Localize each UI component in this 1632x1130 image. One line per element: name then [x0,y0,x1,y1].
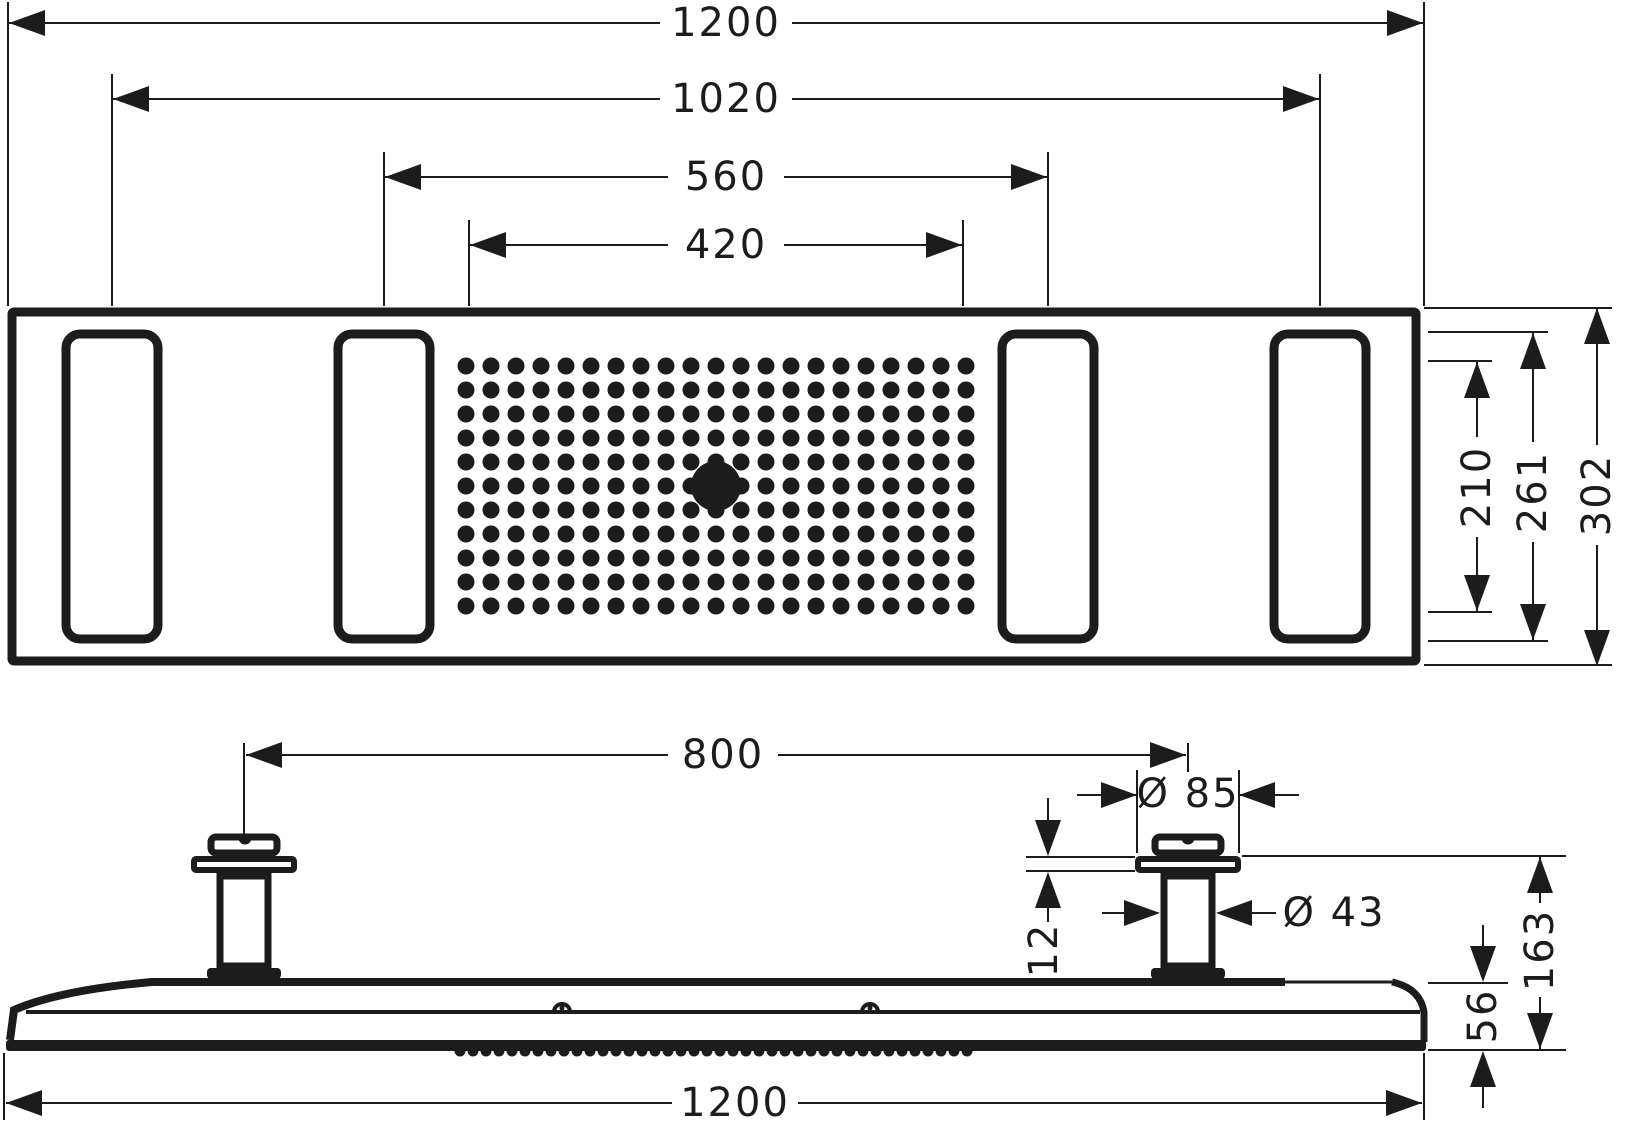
spray-nozzle-dot [708,598,725,615]
spray-nozzle-dot [508,502,525,519]
spray-nozzle-dot [833,550,850,567]
spray-nozzle-dot [683,598,700,615]
arrow-down-icon [1464,575,1490,611]
nozzle-tooth [637,1051,648,1057]
nozzle-tooth [923,1051,934,1057]
spray-nozzle-dot [583,526,600,543]
spray-nozzle-dot [583,358,600,375]
dim-label: 560 [685,154,767,200]
spray-nozzle-dot [558,550,575,567]
spray-nozzle-dot [908,406,925,423]
spray-nozzle-dot [833,574,850,591]
spray-nozzle-dot [533,550,550,567]
nozzle-tooth [819,1051,830,1057]
nozzle-tooth [572,1051,583,1057]
spray-nozzle-dot [458,598,475,615]
spray-nozzle-dot [458,502,475,519]
spray-nozzle-dot [758,430,775,447]
arrow-down-icon [1520,604,1546,640]
dim-label: 261 [1510,451,1556,533]
spray-nozzle-dot [808,430,825,447]
spray-nozzle-dot [458,550,475,567]
spray-nozzle-dot [608,478,625,495]
connector-foot [207,968,281,979]
spray-nozzle-dot [483,406,500,423]
spray-nozzle-dot [708,550,725,567]
spray-nozzle-dot [783,574,800,591]
spray-nozzle-dot [933,550,950,567]
spray-nozzle-dot [733,454,750,471]
spray-nozzle-dot [583,550,600,567]
side-view [6,837,1426,1057]
spray-nozzle-dot [833,430,850,447]
nozzle-tooth [845,1051,856,1057]
spray-nozzle-dot [458,526,475,543]
nozzle-tooth [780,1051,791,1057]
spray-nozzle-dot [583,478,600,495]
arrow-up-icon [1584,308,1610,344]
nozzle-tooth [585,1051,596,1057]
spray-nozzle-dot [683,502,700,519]
spray-nozzle-dot [458,574,475,591]
spray-nozzle-dot [958,550,975,567]
spray-nozzle-dot [733,550,750,567]
dim-side-overall-width: 1200 [4,1053,1424,1126]
spray-nozzle-dot [583,382,600,399]
dim-body-thickness: 56 [1428,925,1508,1108]
nozzle-teeth [455,1051,973,1057]
spray-nozzle-dot [633,430,650,447]
spray-nozzle-dot [958,382,975,399]
spray-nozzle-dot [858,502,875,519]
spray-nozzle-dot [958,478,975,495]
arrow-up-icon [1470,1051,1496,1087]
nozzle-tooth [689,1051,700,1057]
spray-nozzle-dot [608,454,625,471]
dim-label: 1200 [671,0,781,46]
spray-nozzle-dot [583,430,600,447]
spray-nozzle-dot [558,574,575,591]
spray-nozzle-dot [658,598,675,615]
arrow-up-icon [1464,362,1490,398]
dim-overall-depth: 302 [1574,308,1620,666]
spray-nozzle-dot [758,598,775,615]
spray-nozzle-dot [933,454,950,471]
spray-nozzle-dot [933,430,950,447]
spray-nozzle-dot [883,574,900,591]
side-shower-slot-2 [338,334,430,639]
spray-plate-band [6,1040,1426,1051]
depth-dimensions: 210 261 302 [1424,308,1620,666]
spray-nozzle-dot [683,358,700,375]
spray-nozzle-dot [883,406,900,423]
spray-nozzle-dot [558,502,575,519]
spray-nozzle-dot [508,574,525,591]
spray-nozzle-dot [558,598,575,615]
arrow-left-icon [1239,782,1275,808]
spray-nozzle-dot [933,382,950,399]
nozzle-tooth [455,1051,466,1057]
spray-nozzle-dot [708,382,725,399]
spray-nozzle-dot [883,502,900,519]
spray-nozzle-dot [833,526,850,543]
arrow-left-icon [470,232,506,258]
arrow-left-icon [6,1090,42,1116]
spray-nozzle-dot [833,478,850,495]
spray-nozzle-dot [933,406,950,423]
nozzle-tooth [767,1051,778,1057]
side-shower-slot-4 [1274,334,1366,639]
spray-nozzle-dot [458,430,475,447]
spray-nozzle-dot [558,382,575,399]
nozzle-tooth [897,1051,908,1057]
spray-nozzle-dot [658,406,675,423]
spray-nozzle-dot [858,598,875,615]
spray-nozzle-dot [658,430,675,447]
spray-nozzle-dot [858,430,875,447]
spray-nozzle-dot [708,430,725,447]
spray-nozzle-dot [783,478,800,495]
spray-nozzle-dot [733,382,750,399]
spray-nozzle-dot [483,454,500,471]
arrow-right-icon [1011,164,1047,190]
dim-connector-spacing: 800 [244,732,1188,834]
arrow-down-icon [1470,946,1496,982]
nozzle-tooth [611,1051,622,1057]
spray-nozzle-dot [933,598,950,615]
spray-nozzle-dot [883,430,900,447]
spray-nozzle-dot [783,550,800,567]
nozzle-tooth [468,1051,479,1057]
nozzle-tooth [650,1051,661,1057]
nozzle-tooth [754,1051,765,1057]
nozzle-tooth [884,1051,895,1057]
nozzle-tooth [832,1051,843,1057]
spray-nozzle-dot [883,550,900,567]
arrow-right-icon [1386,1090,1422,1116]
spray-nozzle-dot [683,454,700,471]
nozzle-tooth [533,1051,544,1057]
spray-nozzle-dot [883,478,900,495]
connector-foot [1151,968,1225,979]
spray-nozzle-dot [783,526,800,543]
spray-nozzle-dot [858,382,875,399]
spray-nozzle-dot [458,454,475,471]
arrow-left-icon [113,86,149,112]
spray-nozzle-dot [783,454,800,471]
spray-nozzle-dot [758,526,775,543]
arrow-down-icon [1527,1013,1553,1049]
nozzle-tooth [702,1051,713,1057]
spray-nozzle-dot [683,526,700,543]
spray-nozzle-dot [708,526,725,543]
spray-nozzle-dot [658,478,675,495]
spray-nozzle-dot [958,502,975,519]
spray-nozzle-dot [908,574,925,591]
side-shower-slot-3 [1002,334,1094,639]
spray-nozzle-dot [533,526,550,543]
spray-nozzle-dot [733,526,750,543]
spray-nozzle-dot [758,574,775,591]
spray-nozzle-dot [608,382,625,399]
spray-nozzle-dot [883,454,900,471]
spray-nozzle-dot [633,598,650,615]
spray-nozzle-dot [608,502,625,519]
spray-nozzle-dot [533,574,550,591]
spray-nozzle-dot [558,478,575,495]
spray-nozzle-dot [683,550,700,567]
spray-nozzle-dot [633,454,650,471]
spray-nozzle-dot [933,502,950,519]
spray-nozzle-dot [858,358,875,375]
spray-nozzle-dot [958,454,975,471]
arrow-right-icon [926,232,962,258]
spray-nozzle-dot [483,478,500,495]
spray-nozzle-dot [908,478,925,495]
spray-nozzle-dot [483,430,500,447]
spray-nozzle-dot [458,358,475,375]
dim-label: 302 [1574,454,1620,536]
connector-pipe [220,876,268,966]
spray-nozzle-dot [758,502,775,519]
nozzle-tooth [871,1051,882,1057]
spray-nozzle-dot [808,502,825,519]
dim-installation-height: 163 [1242,856,1566,1050]
nozzle-tooth [962,1051,973,1057]
spray-nozzle-dot [958,430,975,447]
spray-nozzle-dot [458,478,475,495]
spray-nozzle-dot [583,598,600,615]
spray-nozzle-dot [658,358,675,375]
spray-nozzle-dot [908,382,925,399]
dim-label: 12 [1021,923,1067,978]
spray-nozzle-dot [483,598,500,615]
left-connector [194,837,294,979]
dim-label: 210 [1454,446,1500,528]
spray-nozzle-dot [733,502,750,519]
connector-flange [1138,859,1238,870]
nozzle-tooth [793,1051,804,1057]
spray-nozzle-dot [633,550,650,567]
arrow-down-icon [1584,630,1610,666]
spray-nozzle-dot [533,382,550,399]
center-outlet-dot [691,461,741,511]
spray-nozzle-dot [783,502,800,519]
dim-label: 56 [1460,989,1506,1044]
spray-nozzle-dot [808,598,825,615]
spray-nozzle-dot [958,526,975,543]
nozzle-tooth [728,1051,739,1057]
nozzle-tooth [715,1051,726,1057]
spray-nozzle-dot [933,526,950,543]
spray-nozzle-dot [908,550,925,567]
spray-nozzle-dot [483,526,500,543]
spray-nozzle-dot [758,382,775,399]
dim-label: 1020 [671,76,781,122]
dim-flange-thickness: 12 [1021,798,1135,977]
spray-nozzle-dot [608,550,625,567]
right-connector [1138,837,1238,979]
spray-nozzle-dot [533,430,550,447]
nozzle-tooth [949,1051,960,1057]
spray-nozzle-dot [883,358,900,375]
spray-nozzle-dot [858,526,875,543]
spray-nozzle-dot [733,406,750,423]
arrow-up-icon [1035,872,1061,908]
spray-nozzle-dot [658,526,675,543]
spray-nozzle-dot [508,430,525,447]
dim-label: 420 [685,222,767,268]
spray-nozzle-dot [808,358,825,375]
spray-nozzle-dot [508,526,525,543]
spray-nozzle-dot [508,454,525,471]
top-dimensions: 1200 1020 560 420 [8,0,1424,306]
nozzle-tooth [663,1051,674,1057]
nozzle-tooth [598,1051,609,1057]
spray-nozzle-dot [683,574,700,591]
spray-nozzle-dot [858,574,875,591]
spray-nozzle-dot [708,406,725,423]
spray-nozzle-dot [558,430,575,447]
spray-nozzle-dot [958,406,975,423]
spray-nozzle-dot [783,358,800,375]
spray-nozzle-dot [758,358,775,375]
spray-nozzle-dot [583,454,600,471]
spray-nozzle-dot [658,454,675,471]
spray-nozzle-dot [533,406,550,423]
spray-nozzle-dot [733,574,750,591]
spray-nozzle-dot [533,478,550,495]
dim-label: 163 [1517,909,1563,991]
spray-nozzle-dot [633,406,650,423]
spray-nozzle-dot [758,550,775,567]
spray-nozzle-dot [483,574,500,591]
spray-nozzle-dot [483,358,500,375]
spray-dot-grid [458,358,975,615]
spray-nozzle-dot [508,382,525,399]
spray-nozzle-dot [833,358,850,375]
spray-nozzle-dot [808,526,825,543]
spray-nozzle-dot [733,598,750,615]
spray-nozzle-dot [933,574,950,591]
spray-nozzle-dot [808,574,825,591]
spray-nozzle-dot [958,358,975,375]
spray-nozzle-dot [533,502,550,519]
spray-nozzle-dot [508,550,525,567]
spray-nozzle-dot [483,382,500,399]
spray-nozzle-dot [833,454,850,471]
nozzle-tooth [559,1051,570,1057]
nozzle-tooth [546,1051,557,1057]
spray-nozzle-dot [558,526,575,543]
pivot-dot-icon [560,1006,565,1011]
spray-nozzle-dot [658,550,675,567]
spray-nozzle-dot [683,406,700,423]
spray-nozzle-dot [508,598,525,615]
spray-nozzle-dot [658,502,675,519]
spray-nozzle-dot [908,502,925,519]
spray-nozzle-dot [508,406,525,423]
spray-nozzle-dot [858,406,875,423]
spray-nozzle-dot [833,598,850,615]
nozzle-tooth [494,1051,505,1057]
spray-nozzle-dot [708,574,725,591]
spray-nozzle-dot [683,382,700,399]
spray-nozzle-dot [683,430,700,447]
drawing-sheet: 1200 1020 560 420 [0,0,1632,1130]
spray-nozzle-dot [733,430,750,447]
spray-nozzle-dot [483,550,500,567]
spray-nozzle-dot [908,358,925,375]
spray-nozzle-dot [558,358,575,375]
spray-nozzle-dot [708,358,725,375]
spray-nozzle-dot [758,454,775,471]
spray-nozzle-dot [858,454,875,471]
spray-nozzle-dot [533,454,550,471]
arrow-up-icon [1520,333,1546,369]
spray-nozzle-dot [508,358,525,375]
spray-nozzle-dot [908,598,925,615]
spray-nozzle-dot [833,382,850,399]
nozzle-tooth [741,1051,752,1057]
spray-nozzle-dot [808,454,825,471]
spray-nozzle-dot [808,382,825,399]
arrow-right-icon [1124,900,1160,926]
spray-nozzle-dot [608,526,625,543]
spray-nozzle-dot [558,454,575,471]
dim-spray-field-width: 420 [469,220,963,306]
spray-nozzle-dot [583,502,600,519]
spray-nozzle-dot [483,502,500,519]
connector-flange [194,859,294,870]
dim-label: 800 [682,732,764,778]
spray-nozzle-dot [833,406,850,423]
spray-nozzle-dot [783,382,800,399]
top-view [12,312,1416,661]
spray-nozzle-dot [733,358,750,375]
dim-label: Ø 43 [1282,890,1385,936]
spray-nozzle-dot [758,406,775,423]
spray-nozzle-dot [933,478,950,495]
connector-pipe [1164,876,1212,966]
spray-nozzle-dot [783,406,800,423]
nozzle-tooth [624,1051,635,1057]
spray-nozzle-dot [558,406,575,423]
spray-nozzle-dot [883,598,900,615]
nozzle-tooth [936,1051,947,1057]
spray-nozzle-dot [908,526,925,543]
spray-nozzle-dot [908,454,925,471]
spray-nozzle-dot [858,550,875,567]
nozzle-tooth [858,1051,869,1057]
nozzle-tooth [676,1051,687,1057]
spray-nozzle-dot [608,406,625,423]
dim-spray-field-depth: 210 [1454,362,1500,611]
spray-nozzle-dot [608,430,625,447]
arrow-right-icon [1150,742,1186,768]
spray-nozzle-dot [783,430,800,447]
spray-nozzle-dot [508,478,525,495]
spray-nozzle-dot [783,598,800,615]
spray-nozzle-dot [633,526,650,543]
dim-label: 1200 [680,1080,790,1126]
dim-pipe-diameter: Ø 43 [1102,890,1386,936]
spray-nozzle-dot [808,478,825,495]
spray-nozzle-dot [758,478,775,495]
arrow-left-icon [385,164,421,190]
nozzle-tooth [910,1051,921,1057]
spray-nozzle-dot [583,406,600,423]
